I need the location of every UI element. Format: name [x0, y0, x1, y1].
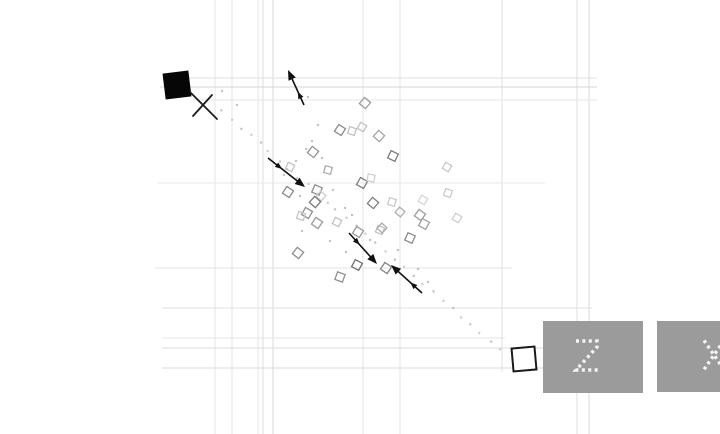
trail-dot [442, 300, 444, 302]
speck-dot [351, 214, 354, 217]
speck-dot [317, 124, 320, 127]
diamond-marker [324, 166, 332, 174]
trail-dot [250, 133, 253, 136]
diamond-marker [297, 212, 306, 221]
speck-dot [301, 230, 304, 233]
speck-dot [221, 90, 224, 93]
arrow-head [298, 92, 303, 100]
diamond-marker [452, 213, 462, 223]
trail-dot [421, 282, 424, 285]
trail-dot [469, 323, 471, 325]
speck-dot [295, 160, 298, 163]
speck-dot [345, 251, 348, 254]
speck-dot [369, 239, 372, 242]
diamond-marker [348, 127, 357, 136]
trail-dot [499, 348, 502, 351]
trail-dot [240, 127, 243, 130]
speck-dot [397, 249, 400, 252]
diamond-marker [444, 189, 453, 198]
key-hint-box-2[interactable] [543, 321, 643, 393]
diamond-marker [334, 124, 345, 135]
speck-dot [321, 157, 324, 160]
arrow-head [295, 178, 305, 187]
trail-dot [460, 316, 463, 319]
trail-dot [374, 241, 377, 244]
speck-dot [305, 148, 308, 151]
speck-dot [311, 140, 314, 143]
arrow-head [288, 70, 296, 81]
diamond-marker [388, 198, 397, 207]
diamond-marker [418, 195, 428, 205]
speck-dot [236, 104, 239, 107]
diamond-marker [312, 185, 323, 196]
trail-dot [266, 150, 269, 153]
trail-dot [394, 258, 396, 260]
speck-dot [427, 281, 430, 284]
trail-dot [478, 331, 481, 334]
diamond-marker [388, 151, 399, 162]
trail-dot [326, 201, 329, 204]
trail-dot [231, 119, 233, 121]
key-hint-box-x[interactable] [657, 321, 720, 392]
trail-dot [279, 160, 282, 163]
diamond-marker [307, 146, 318, 157]
diamond-marker [377, 223, 387, 233]
speck-dot [307, 96, 310, 99]
diamond-marker [352, 260, 363, 271]
diamond-marker [367, 174, 375, 182]
diamond-marker [332, 217, 341, 226]
trail-dot [260, 141, 262, 143]
diamond-marker [285, 162, 294, 171]
goal-square [512, 347, 537, 372]
diamond-marker [311, 217, 322, 228]
speck-dot [329, 240, 332, 243]
trail-dot [432, 290, 435, 293]
diamond-marker [335, 272, 345, 282]
speck-dot [344, 207, 347, 210]
diamond-marker [359, 97, 370, 108]
trail-dot [220, 109, 222, 111]
diamond-marker [375, 225, 384, 234]
diamond-marker [282, 186, 293, 197]
speck-dot [283, 174, 286, 177]
speck-dot [332, 189, 335, 192]
game-canvas[interactable] [0, 0, 720, 434]
trail-dot [334, 208, 337, 211]
trail-dot [384, 250, 387, 253]
diamond-marker [352, 226, 363, 237]
diamond-marker [357, 122, 367, 132]
trail-dot [490, 340, 492, 342]
trail-dot [452, 307, 454, 309]
diamond-marker [405, 233, 416, 244]
diamond-marker [292, 247, 303, 258]
trail-dot [345, 216, 348, 219]
diamond-marker [442, 162, 452, 172]
agent-square [163, 71, 192, 100]
trail-dot [364, 233, 366, 235]
diamond-marker [367, 197, 378, 208]
trail-dot [413, 275, 415, 277]
scene-svg [0, 0, 720, 434]
diamond-marker [373, 130, 384, 141]
speck-dot [299, 195, 302, 198]
